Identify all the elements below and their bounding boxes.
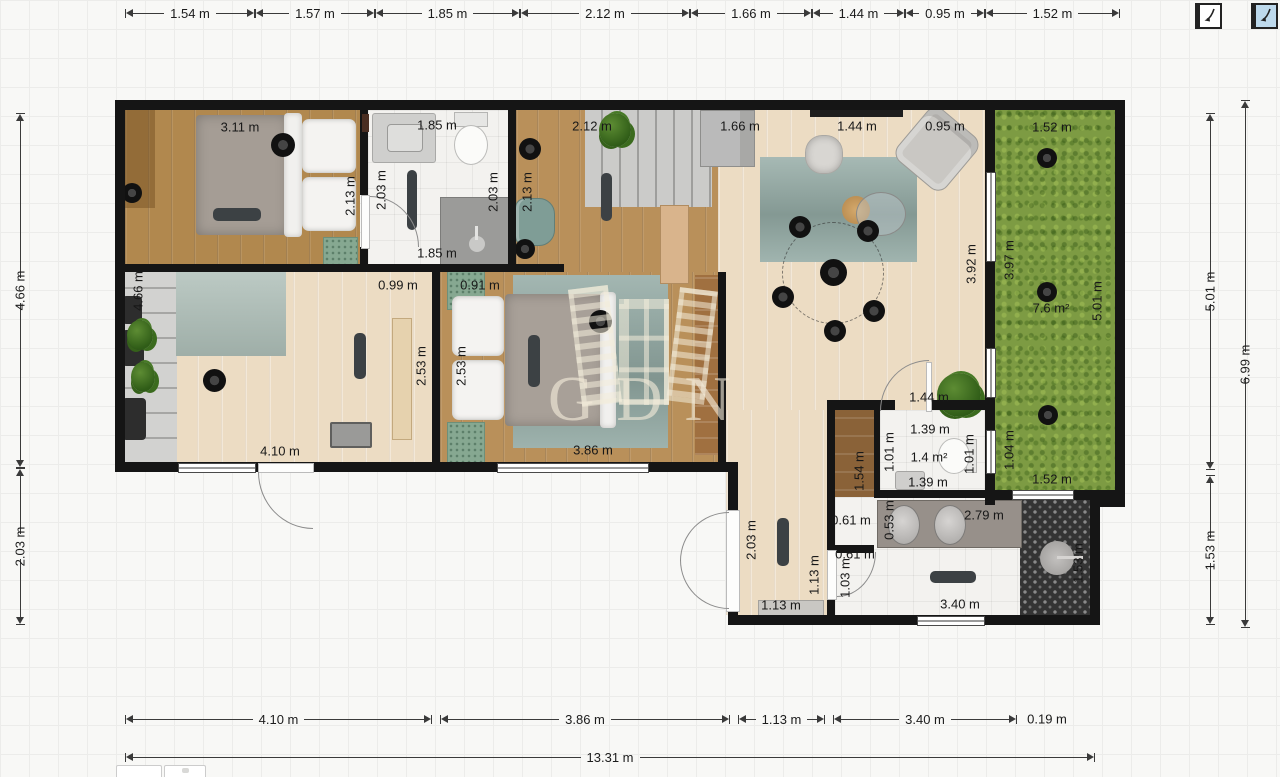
room-dimension-label: 1.52 m	[1032, 120, 1072, 135]
sink-basin	[934, 505, 966, 545]
wall-bed2-living	[718, 272, 726, 462]
room-dimension-label: 1.03 m	[838, 558, 853, 598]
room-dimension-label: 1.04 m	[1002, 430, 1017, 470]
room-dimension-label: 1.01 m	[962, 434, 977, 474]
plant-living-bl[interactable]	[127, 320, 153, 350]
dimension-line: 1.54 m	[125, 6, 255, 20]
toilet-bowl	[454, 125, 488, 165]
room-dimension-label: 3.97 m	[1002, 240, 1017, 280]
room-dimension-label: 1.85 m	[417, 246, 457, 261]
room-dimension-label: 3.11 m	[221, 120, 260, 135]
door-living-bl-swing	[258, 472, 313, 529]
living-bl-rug[interactable]	[176, 270, 286, 356]
dimension-line: 3.40 m	[833, 712, 1017, 726]
garden-light[interactable]	[1037, 282, 1057, 302]
dimension-line: 1.52 m	[985, 6, 1120, 20]
shower-arm	[475, 226, 478, 240]
room-dimension-label: 1.13 m	[807, 555, 822, 595]
window-garden-bottom[interactable]	[1012, 490, 1074, 500]
room-dimension-label: 2.79 m	[964, 508, 1004, 523]
room-dimension-label: 1.66 m	[720, 119, 760, 134]
room-dimension-label: 2.13 m	[343, 176, 358, 216]
room-dimension-label: 1.13 m	[761, 598, 801, 613]
ceiling-light[interactable]	[203, 369, 226, 392]
mirror-plan-icon[interactable]	[1195, 3, 1222, 29]
room-dimension-label: 1.44 m	[837, 119, 877, 134]
spot-light[interactable]	[863, 300, 885, 322]
room-dimension-label: 2.53 m	[414, 346, 429, 386]
wall-bath1-dressing	[508, 110, 516, 272]
cutoff-toolbar-button[interactable]	[164, 765, 206, 777]
mirror-plan-icon-active[interactable]	[1251, 3, 1278, 29]
wall-right-upper	[1115, 100, 1125, 507]
spot-light[interactable]	[824, 320, 846, 342]
room-dimension-label: 1.53 m	[1071, 543, 1086, 583]
bed-2-duvet	[505, 294, 605, 426]
wall-bed1-bottom	[125, 264, 516, 272]
toilet-1[interactable]	[452, 112, 488, 166]
room-dimension-label: 3.92 m	[964, 244, 979, 284]
bedroom-2-wardrobe[interactable]	[695, 275, 718, 455]
dimension-line: 0.95 m	[905, 6, 985, 20]
room-dimension-label: 2.53 m	[454, 346, 469, 386]
dimension-line: 6.99 m	[1238, 100, 1252, 628]
room-dimension-label: 1.01 m	[882, 432, 897, 472]
window-garden-2[interactable]	[986, 348, 996, 398]
radiator-bathroom-2[interactable]	[930, 571, 976, 583]
door-bathroom-1[interactable]	[361, 195, 370, 249]
wall-right-lower	[1090, 497, 1100, 625]
room-dimension-label: 7.6 m²	[1033, 301, 1070, 316]
room-dimension-label: 2.03 m	[744, 520, 759, 560]
entry-door-swing-bottom	[680, 560, 729, 609]
radiator-hallway[interactable]	[777, 518, 789, 566]
window-bathroom-2[interactable]	[917, 616, 985, 626]
dimension-line: 1.66 m	[690, 6, 812, 20]
room-dimension-label: 1.39 m	[910, 422, 950, 437]
room-dimension-label: 2.03 m	[374, 170, 389, 210]
room-dimension-label: 3.40 m	[940, 597, 980, 612]
radiator-dressing[interactable]	[601, 173, 612, 221]
ac-unit[interactable]	[330, 422, 372, 448]
room-dimension-label: 3.86 m	[573, 443, 613, 458]
bathroom-1-wall-cabinet[interactable]	[362, 114, 369, 132]
room-dimension-label: 1.52 m	[1032, 472, 1072, 487]
room-dimension-label: 0.61 m	[831, 513, 871, 528]
plan-corner-toolbar	[1195, 3, 1278, 29]
dimension-line: 1.44 m	[812, 6, 905, 20]
dimension-line: 5.01 m	[1203, 113, 1217, 470]
room-dimension-label: 1.44 m	[909, 390, 949, 405]
entry-door-swing-top	[680, 512, 729, 561]
window-bedroom-2[interactable]	[497, 463, 649, 473]
room-dimension-label: 4.66 m	[131, 271, 146, 311]
room-dimension-label: 5.01 m	[1090, 281, 1105, 321]
room-dimension-label: 0.53 m	[882, 500, 897, 540]
side-counter[interactable]	[392, 318, 412, 440]
room-dimension-label: 2.12 m	[572, 119, 612, 134]
cutoff-toolbar-button[interactable]	[116, 765, 162, 777]
wall-livbl-bed2	[432, 272, 440, 462]
garden-light[interactable]	[1037, 148, 1057, 168]
room-dimension-label: 1.54 m	[852, 451, 867, 491]
ceiling-light[interactable]	[122, 183, 142, 203]
wall-hall-right-a	[827, 400, 835, 550]
bedroom-1-mat[interactable]	[323, 237, 358, 267]
room-dimension-label: 0.91 m	[460, 278, 500, 293]
bed-1-pillow	[302, 119, 356, 173]
plant-living-bl[interactable]	[131, 362, 155, 392]
room-dimension-label: 1.4 m²	[911, 450, 948, 465]
room-dimension-label: 2.13 m	[520, 172, 535, 212]
spot-light[interactable]	[772, 286, 794, 308]
wall-hall-right-b	[827, 598, 835, 615]
radiator-living-bl[interactable]	[354, 333, 366, 379]
room-dimension-label: 2.03 m	[486, 172, 501, 212]
floorplan-canvas: GDN 1.54 m1.57 m1.85 m2.12 m1.66 m1.44 m…	[0, 0, 1280, 777]
garden-light[interactable]	[1038, 405, 1058, 425]
dimension-line: 1.53 m	[1203, 475, 1217, 625]
radiator-bedroom-2[interactable]	[528, 335, 540, 387]
dimension-line: 1.57 m	[255, 6, 375, 20]
ceiling-fan-center[interactable]	[820, 259, 847, 286]
ceiling-light[interactable]	[589, 310, 612, 333]
bed-1-blanket-fold	[284, 113, 302, 237]
wall-left	[115, 100, 125, 472]
window-wc[interactable]	[986, 430, 996, 474]
window-garden-1[interactable]	[986, 172, 996, 262]
dimension-line: 2.12 m	[520, 6, 690, 20]
dimension-line: 3.86 m	[440, 712, 730, 726]
pouf[interactable]	[805, 135, 843, 174]
plant-pot[interactable]	[122, 398, 146, 440]
dimension-line: 4.66 m	[13, 113, 27, 468]
spot-light[interactable]	[857, 220, 879, 242]
wall-bottom-right	[728, 615, 1100, 625]
room-dimension-label: 4.10 m	[260, 444, 300, 459]
dimension-line: 13.31 m	[125, 750, 1095, 764]
ceiling-light[interactable]	[519, 138, 541, 160]
wall-dressing-stub	[516, 264, 564, 272]
room-dimension-label: 0.19 m	[1027, 712, 1067, 727]
window-living-bl[interactable]	[178, 463, 256, 473]
radiator-bedroom-1[interactable]	[213, 208, 261, 221]
room-dimension-label: 1.39 m	[908, 475, 948, 490]
room-dimension-label: 0.95 m	[925, 119, 965, 134]
room-dimension-label: 1.85 m	[417, 118, 457, 133]
spot-light[interactable]	[789, 216, 811, 238]
wall-closet-wc	[874, 410, 880, 490]
dimension-line: 2.03 m	[13, 468, 27, 625]
dimension-line: 1.85 m	[375, 6, 520, 20]
dimension-line: 4.10 m	[125, 712, 432, 726]
dimension-line: 1.13 m	[738, 712, 825, 726]
room-dimension-label: 0.99 m	[378, 278, 418, 293]
wall-top	[115, 100, 1125, 110]
ceiling-light[interactable]	[515, 239, 535, 259]
dressing-wardrobe[interactable]	[660, 205, 689, 284]
ceiling-light[interactable]	[271, 133, 295, 157]
